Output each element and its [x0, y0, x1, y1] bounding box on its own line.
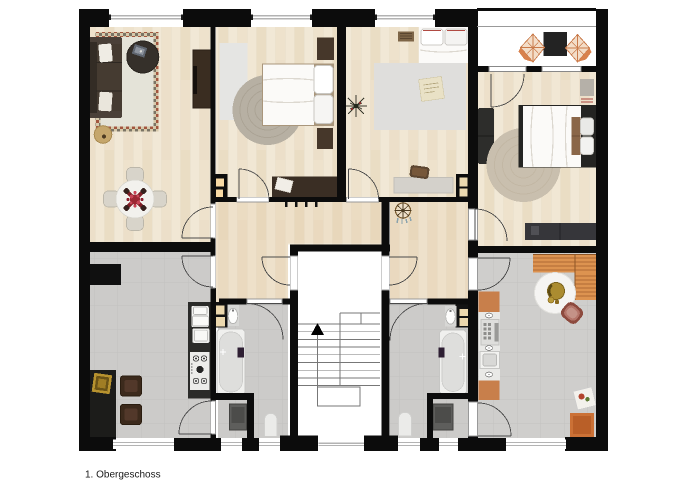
svg-text:1. Obergeschoss: 1. Obergeschoss: [85, 470, 161, 481]
